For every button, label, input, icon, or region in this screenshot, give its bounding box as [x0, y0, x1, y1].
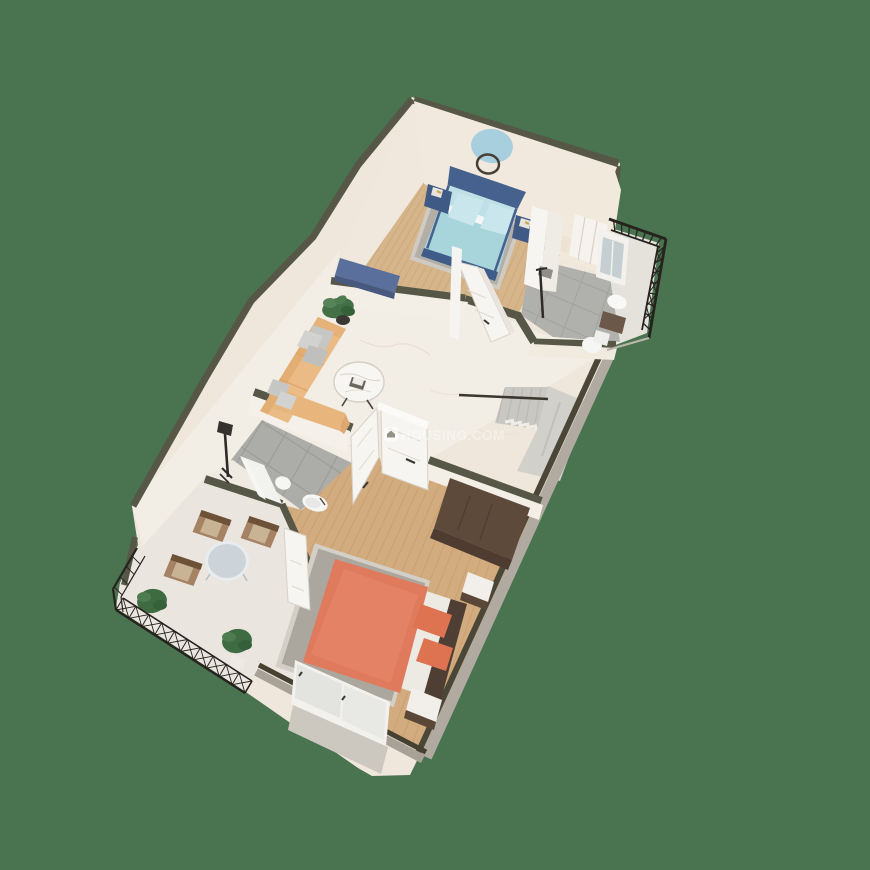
- svg-text:HOUSING.COM: HOUSING.COM: [401, 428, 505, 443]
